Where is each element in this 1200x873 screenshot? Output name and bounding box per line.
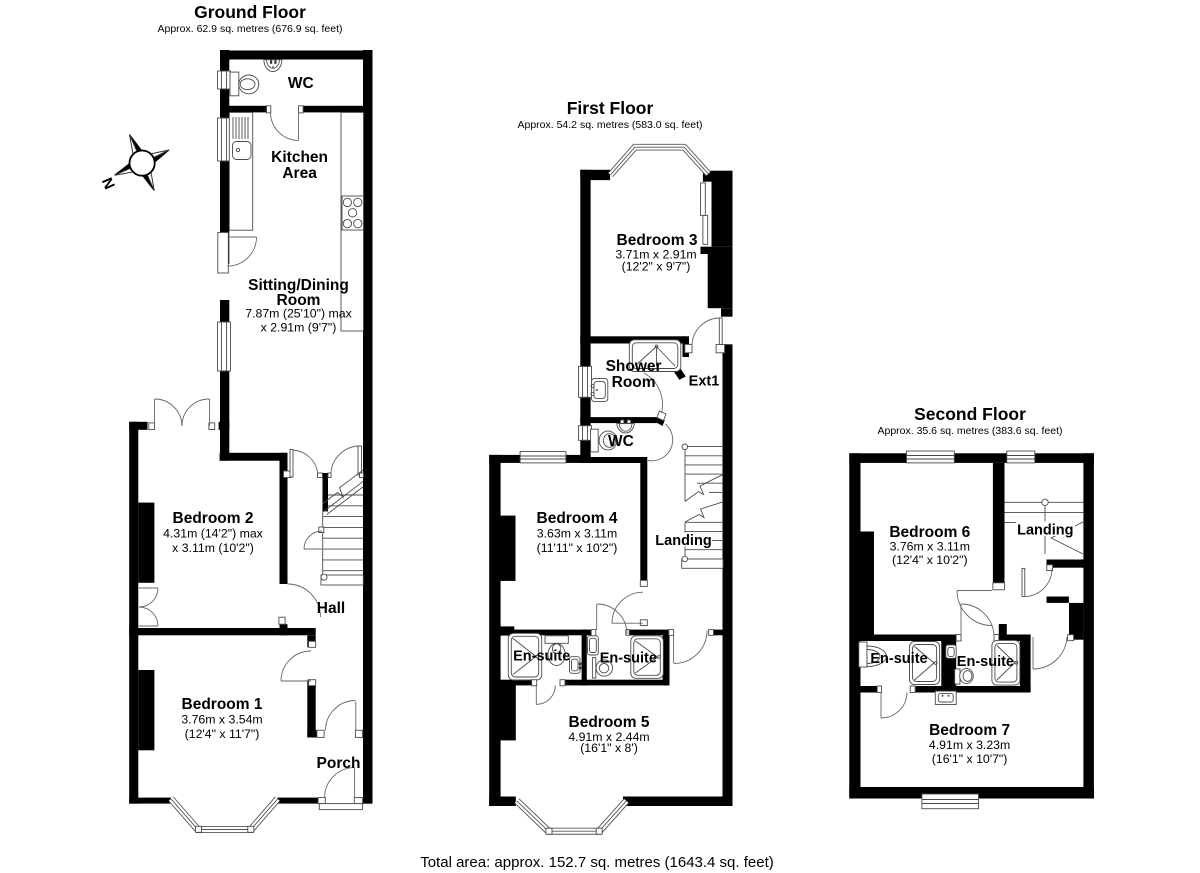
svg-text:Bedroom 4: Bedroom 4	[537, 510, 618, 527]
svg-text:Shower: Shower	[606, 358, 662, 375]
svg-text:En-suite: En-suite	[957, 654, 1014, 670]
svg-text:First Floor: First Floor	[567, 98, 654, 118]
svg-text:4.91m x 3.23m: 4.91m x 3.23m	[929, 738, 1010, 752]
svg-text:Porch: Porch	[317, 755, 361, 772]
svg-text:3.63m x 3.11m: 3.63m x 3.11m	[537, 527, 617, 541]
svg-text:Bedroom 7: Bedroom 7	[929, 722, 1010, 739]
svg-text:(12'4" x 11'7"): (12'4" x 11'7")	[185, 727, 260, 741]
svg-text:x 2.91m (9'7"): x 2.91m (9'7")	[261, 321, 337, 335]
svg-text:Kitchen: Kitchen	[271, 149, 328, 166]
svg-text:Room: Room	[612, 374, 656, 391]
svg-text:3.76m x 3.11m: 3.76m x 3.11m	[890, 540, 970, 554]
svg-text:(11'11" x 10'2"): (11'11" x 10'2")	[537, 541, 618, 555]
svg-text:(16'1" x 10'7"): (16'1" x 10'7")	[932, 752, 1008, 766]
svg-text:Approx. 35.6 sq. metres (383.6: Approx. 35.6 sq. metres (383.6 sq. feet)	[877, 425, 1062, 437]
svg-text:Bedroom 6: Bedroom 6	[889, 524, 970, 541]
svg-text:Ground Floor: Ground Floor	[194, 2, 306, 22]
svg-text:Landing: Landing	[1017, 523, 1073, 539]
svg-text:7.87m (25'10") max: 7.87m (25'10") max	[245, 307, 352, 321]
svg-text:Landing: Landing	[655, 533, 711, 549]
svg-text:Area: Area	[282, 165, 317, 182]
svg-text:En-suite: En-suite	[600, 651, 657, 667]
svg-text:Bedroom 5: Bedroom 5	[569, 714, 650, 731]
svg-text:En-suite: En-suite	[513, 649, 570, 665]
svg-text:4.31m (14'2") max: 4.31m (14'2") max	[163, 527, 264, 541]
svg-text:Second Floor: Second Floor	[914, 404, 1026, 424]
svg-text:(12'2" x 9'7"): (12'2" x 9'7")	[622, 260, 691, 274]
svg-text:Approx. 62.9 sq. metres (676.9: Approx. 62.9 sq. metres (676.9 sq. feet)	[157, 23, 342, 35]
svg-text:Bedroom 2: Bedroom 2	[173, 510, 254, 527]
svg-text:Approx. 54.2 sq. metres (583.0: Approx. 54.2 sq. metres (583.0 sq. feet)	[517, 119, 702, 131]
svg-text:WC: WC	[608, 433, 634, 450]
svg-text:3.76m x 3.54m: 3.76m x 3.54m	[181, 713, 262, 727]
svg-text:(16'1" x 8'): (16'1" x 8')	[580, 741, 638, 755]
svg-text:Bedroom 3: Bedroom 3	[617, 232, 698, 249]
svg-text:Bedroom 1: Bedroom 1	[182, 696, 263, 713]
svg-text:x 3.11m (10'2"): x 3.11m (10'2")	[172, 541, 254, 555]
svg-text:Ext1: Ext1	[689, 374, 720, 390]
svg-text:WC: WC	[288, 75, 314, 92]
svg-text:Total area: approx. 152.7 sq.: Total area: approx. 152.7 sq. metres (16…	[420, 854, 774, 871]
svg-text:Hall: Hall	[317, 600, 345, 617]
svg-text:En-suite: En-suite	[870, 651, 927, 667]
svg-text:(12'4" x 10'2"): (12'4" x 10'2")	[892, 553, 968, 567]
